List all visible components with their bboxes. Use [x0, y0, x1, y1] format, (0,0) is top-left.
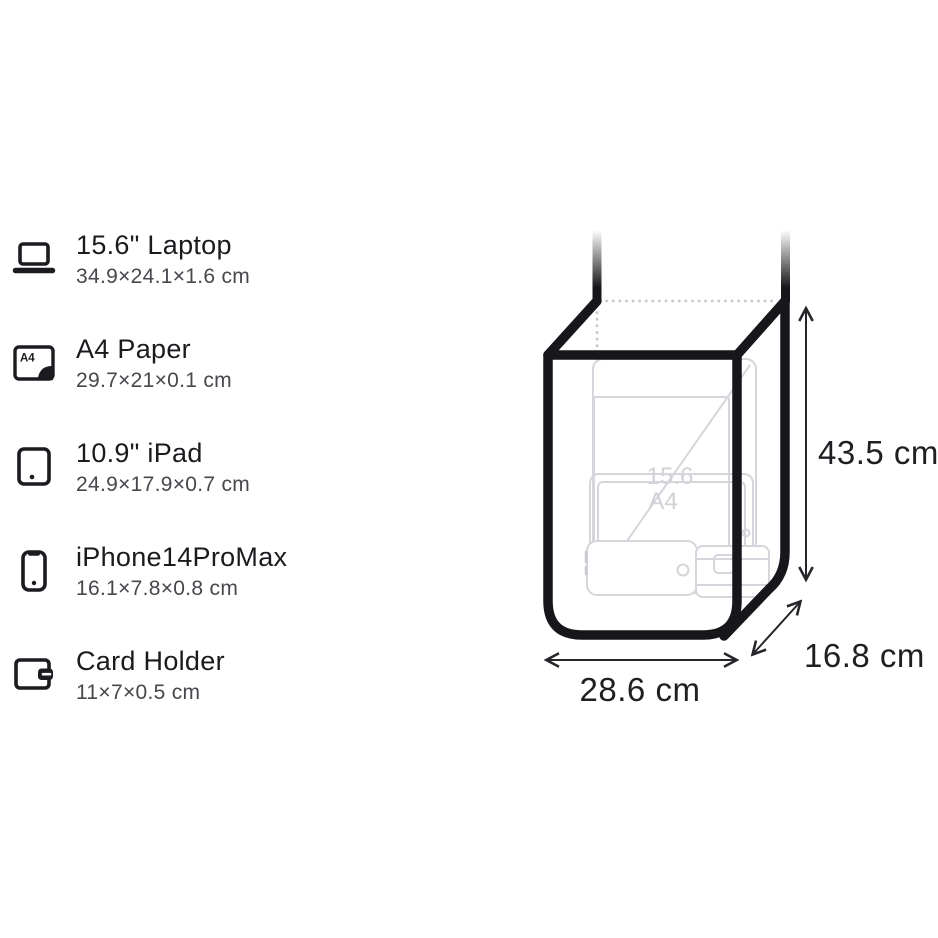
- width-dimension-label: 28.6 cm: [580, 671, 701, 708]
- bag-capacity-diagram: 15.6 A4: [0, 0, 938, 938]
- ghost-iphone: [586, 541, 697, 595]
- depth-arrow: [753, 602, 800, 654]
- strap-lines: [593, 230, 791, 302]
- ghost-a4-label: A4: [648, 488, 677, 515]
- ghost-laptop-label: 15.6: [647, 463, 694, 490]
- depth-dimension-label: 16.8 cm: [804, 637, 925, 674]
- height-dimension-label: 43.5 cm: [818, 434, 938, 471]
- bag-wireframe-svg: 15.6 A4: [0, 0, 938, 938]
